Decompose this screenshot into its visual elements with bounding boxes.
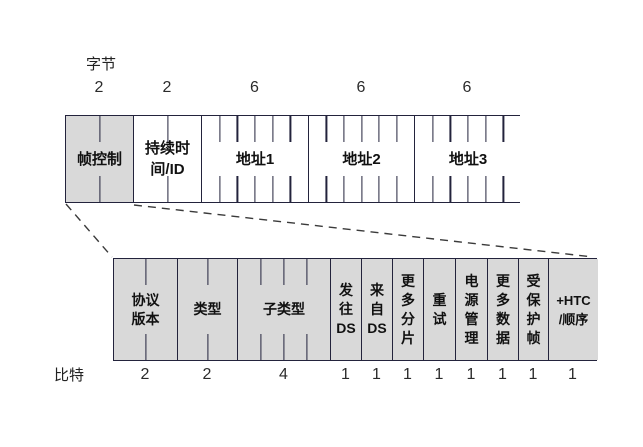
byte-field-cell-label: 地址2: [342, 149, 380, 170]
dashed-line-right: [134, 205, 593, 257]
unit-tick: [450, 116, 451, 142]
byte-field-count: 6: [357, 79, 366, 97]
bit-field-count: 1: [467, 366, 476, 384]
unit-tick: [254, 116, 255, 142]
unit-tick: [219, 116, 220, 142]
byte-field-count: 2: [95, 79, 104, 97]
bit-field-cell-2: 子类型: [238, 259, 331, 360]
unit-tick: [219, 176, 220, 202]
bit-field-cell-9: 受保护帧: [519, 259, 549, 360]
bit-field-cell-label: 协议版本: [132, 291, 160, 329]
unit-tick: [361, 116, 362, 142]
bit-field-cell-label: 子类型: [263, 300, 305, 319]
unit-tick: [145, 334, 146, 360]
unit-tick: [361, 176, 362, 202]
byte-count-row: 22666: [65, 79, 520, 99]
byte-field-cell-1: 持续时间/ID: [134, 116, 202, 202]
unit-tick: [343, 116, 344, 142]
unit-tick: [254, 176, 255, 202]
unit-tick: [99, 116, 100, 142]
unit-tick: [343, 176, 344, 202]
unit-tick: [145, 259, 146, 285]
unit-tick: [396, 116, 397, 142]
bit-field-cell-label: 类型: [194, 300, 222, 319]
unit-tick: [290, 116, 291, 142]
bit-field-count: 1: [372, 366, 381, 384]
unit-tick: [283, 259, 284, 285]
bit-field-cell-8: 更多数据: [488, 259, 519, 360]
unit-tick: [326, 116, 327, 142]
bit-field-cell-label: 受保护帧: [527, 272, 541, 348]
bit-field-cell-7: 电源管理: [456, 259, 488, 360]
bit-field-count: 1: [435, 366, 444, 384]
byte-field-count: 6: [250, 79, 259, 97]
unit-tick: [378, 176, 379, 202]
bit-field-cell-label: 电源管理: [465, 272, 479, 348]
byte-field-cell-3: 地址2: [309, 116, 415, 202]
bit-count-row: 22411111111: [113, 366, 597, 386]
bit-field-cell-1: 类型: [178, 259, 238, 360]
bit-field-count: 1: [529, 366, 538, 384]
unit-tick: [272, 116, 273, 142]
byte-field-cell-label: 地址3: [449, 149, 487, 170]
bit-field-cell-label: +HTC/顺序: [556, 291, 590, 329]
unit-tick: [432, 116, 433, 142]
bit-scale-label: 比特: [54, 364, 84, 385]
bit-field-cell-label: 来自DS: [367, 281, 386, 338]
unit-tick: [450, 176, 451, 202]
byte-field-cell-label: 帧控制: [77, 149, 122, 170]
mac-frame-format-diagram: 字节 22666 帧控制持续时间/ID地址1地址2地址3 协议版本类型子类型发往…: [0, 0, 643, 447]
unit-tick: [237, 116, 238, 142]
bit-field-cell-label: 更多数据: [496, 272, 510, 348]
unit-tick: [485, 116, 486, 142]
unit-tick: [326, 176, 327, 202]
bit-field-cell-label: 更多分片: [401, 272, 415, 348]
bit-field-cell-10: +HTC/顺序: [549, 259, 598, 360]
byte-scale-label: 字节: [86, 53, 116, 74]
unit-tick: [485, 176, 486, 202]
bit-field-cell-0: 协议版本: [114, 259, 178, 360]
unit-tick: [283, 334, 284, 360]
bit-field-cell-3: 发往DS: [331, 259, 362, 360]
bit-field-count: 1: [568, 366, 577, 384]
unit-tick: [260, 259, 261, 285]
byte-field-count: 6: [463, 79, 472, 97]
byte-field-cell-label: 地址1: [236, 149, 274, 170]
unit-tick: [503, 176, 504, 202]
unit-tick: [306, 334, 307, 360]
unit-tick: [207, 334, 208, 360]
unit-tick: [272, 176, 273, 202]
unit-tick: [260, 334, 261, 360]
bit-field-cell-6: 重试: [424, 259, 456, 360]
unit-tick: [396, 176, 397, 202]
bit-field-cell-label: 发往DS: [336, 281, 355, 338]
unit-tick: [503, 116, 504, 142]
bit-field-count: 1: [498, 366, 507, 384]
bit-field-cell-4: 来自DS: [362, 259, 393, 360]
byte-field-row: 帧控制持续时间/ID地址1地址2地址3: [65, 115, 520, 203]
byte-field-count: 2: [163, 79, 172, 97]
unit-tick: [378, 116, 379, 142]
unit-tick: [237, 176, 238, 202]
unit-tick: [467, 176, 468, 202]
unit-tick: [290, 176, 291, 202]
unit-tick: [99, 176, 100, 202]
byte-field-cell-0: 帧控制: [66, 116, 134, 202]
bit-field-cell-5: 更多分片: [393, 259, 424, 360]
bit-field-count: 2: [203, 366, 212, 384]
bit-field-row: 协议版本类型子类型发往DS来自DS更多分片重试电源管理更多数据受保护帧+HTC/…: [113, 258, 597, 361]
bit-field-count: 1: [341, 366, 350, 384]
byte-field-cell-2: 地址1: [202, 116, 309, 202]
bit-field-count: 1: [403, 366, 412, 384]
byte-field-cell-4: 地址3: [415, 116, 521, 202]
bit-field-count: 4: [279, 366, 288, 384]
unit-tick: [207, 259, 208, 285]
unit-tick: [467, 116, 468, 142]
bit-field-count: 2: [141, 366, 150, 384]
byte-field-cell-label: 持续时间/ID: [145, 138, 190, 180]
dashed-line-left: [66, 204, 112, 257]
unit-tick: [432, 176, 433, 202]
bit-field-cell-label: 重试: [433, 291, 447, 329]
unit-tick: [306, 259, 307, 285]
